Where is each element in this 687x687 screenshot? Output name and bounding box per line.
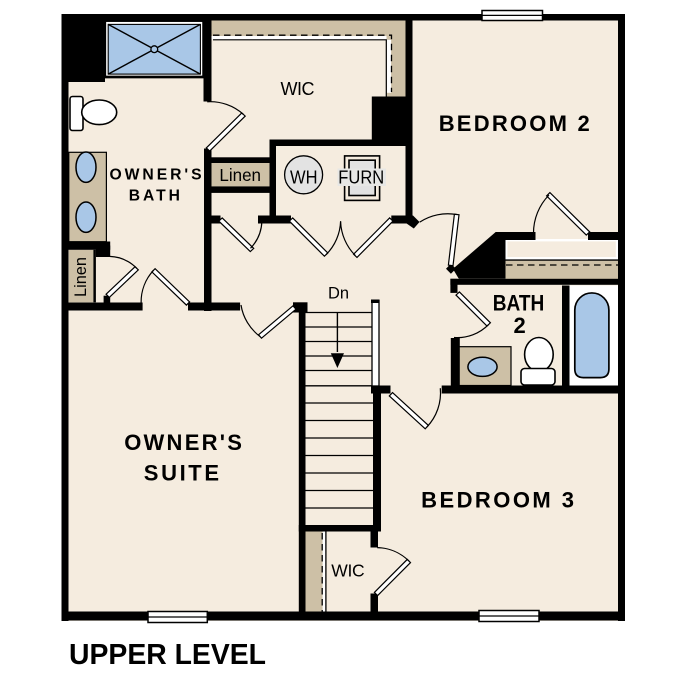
svg-text:BATH: BATH xyxy=(129,188,183,205)
svg-text:Dn: Dn xyxy=(328,283,349,302)
svg-text:Linen: Linen xyxy=(219,165,261,185)
svg-text:OWNER'S: OWNER'S xyxy=(110,167,205,184)
svg-text:SUITE: SUITE xyxy=(144,461,222,486)
svg-text:UPPER LEVEL: UPPER LEVEL xyxy=(69,639,266,671)
svg-text:WIC: WIC xyxy=(281,79,315,99)
svg-text:FURN: FURN xyxy=(338,168,384,188)
svg-text:BEDROOM 3: BEDROOM 3 xyxy=(421,488,576,513)
svg-text:WIC: WIC xyxy=(331,561,365,581)
svg-text:BEDROOM 2: BEDROOM 2 xyxy=(439,111,592,136)
svg-text:WH: WH xyxy=(290,168,318,188)
svg-text:Linen: Linen xyxy=(71,257,90,297)
svg-text:2: 2 xyxy=(513,313,525,338)
svg-text:OWNER'S: OWNER'S xyxy=(124,430,244,455)
